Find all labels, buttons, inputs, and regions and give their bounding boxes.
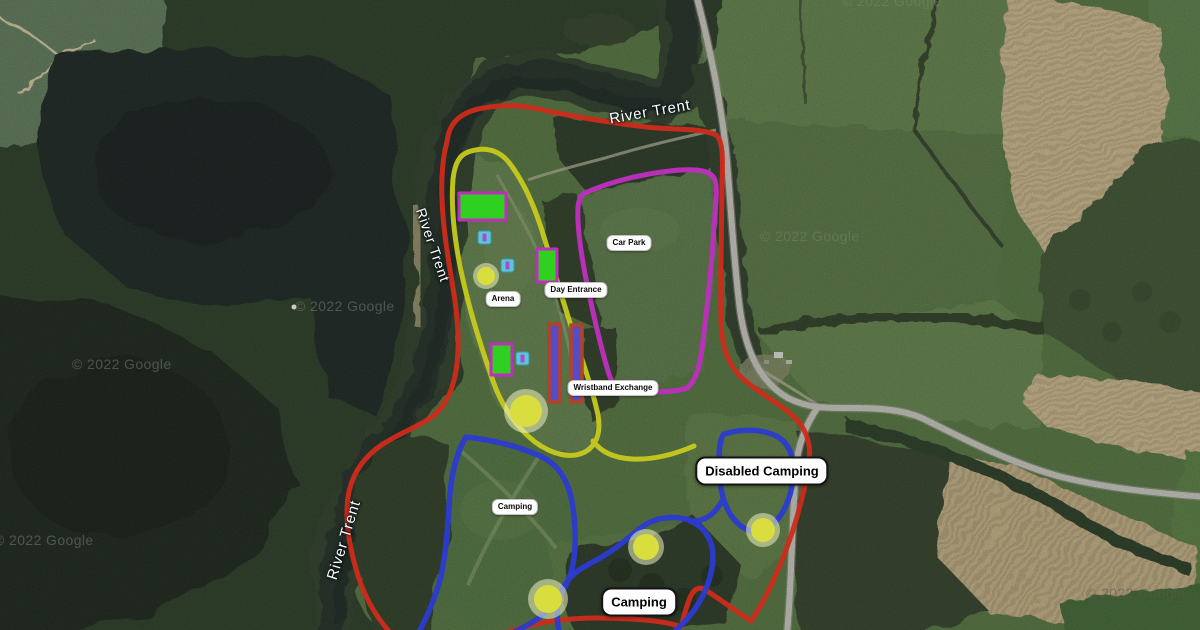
stage-block-south	[491, 344, 512, 375]
satellite-basemap	[0, 0, 1200, 630]
festival-site-map: River Trent River Trent River Trent Car …	[0, 0, 1200, 630]
stage-block-main	[459, 193, 506, 220]
label-car-park: Car Park	[607, 235, 652, 251]
google-attribution: © 2022 Google	[72, 356, 172, 372]
google-attribution: © 2022 Google	[0, 532, 94, 548]
google-attribution: © 2022 Google	[295, 298, 395, 314]
label-day-entrance: Day Entrance	[544, 282, 607, 298]
label-camping-small: Camping	[492, 499, 538, 515]
label-camping-large: Camping	[601, 588, 677, 617]
google-attribution: © 2022 Google	[760, 228, 860, 244]
google-attribution: © 2022 Google	[1086, 585, 1186, 601]
label-arena: Arena	[486, 291, 521, 307]
label-wristband-exchange: Wristband Exchange	[568, 380, 659, 396]
label-disabled-camping: Disabled Camping	[695, 457, 828, 486]
stage-block-east	[537, 249, 557, 282]
gate-bar-west	[549, 324, 560, 402]
grain-light	[0, 0, 1200, 630]
google-attribution: © 2022 Google	[842, 0, 942, 9]
